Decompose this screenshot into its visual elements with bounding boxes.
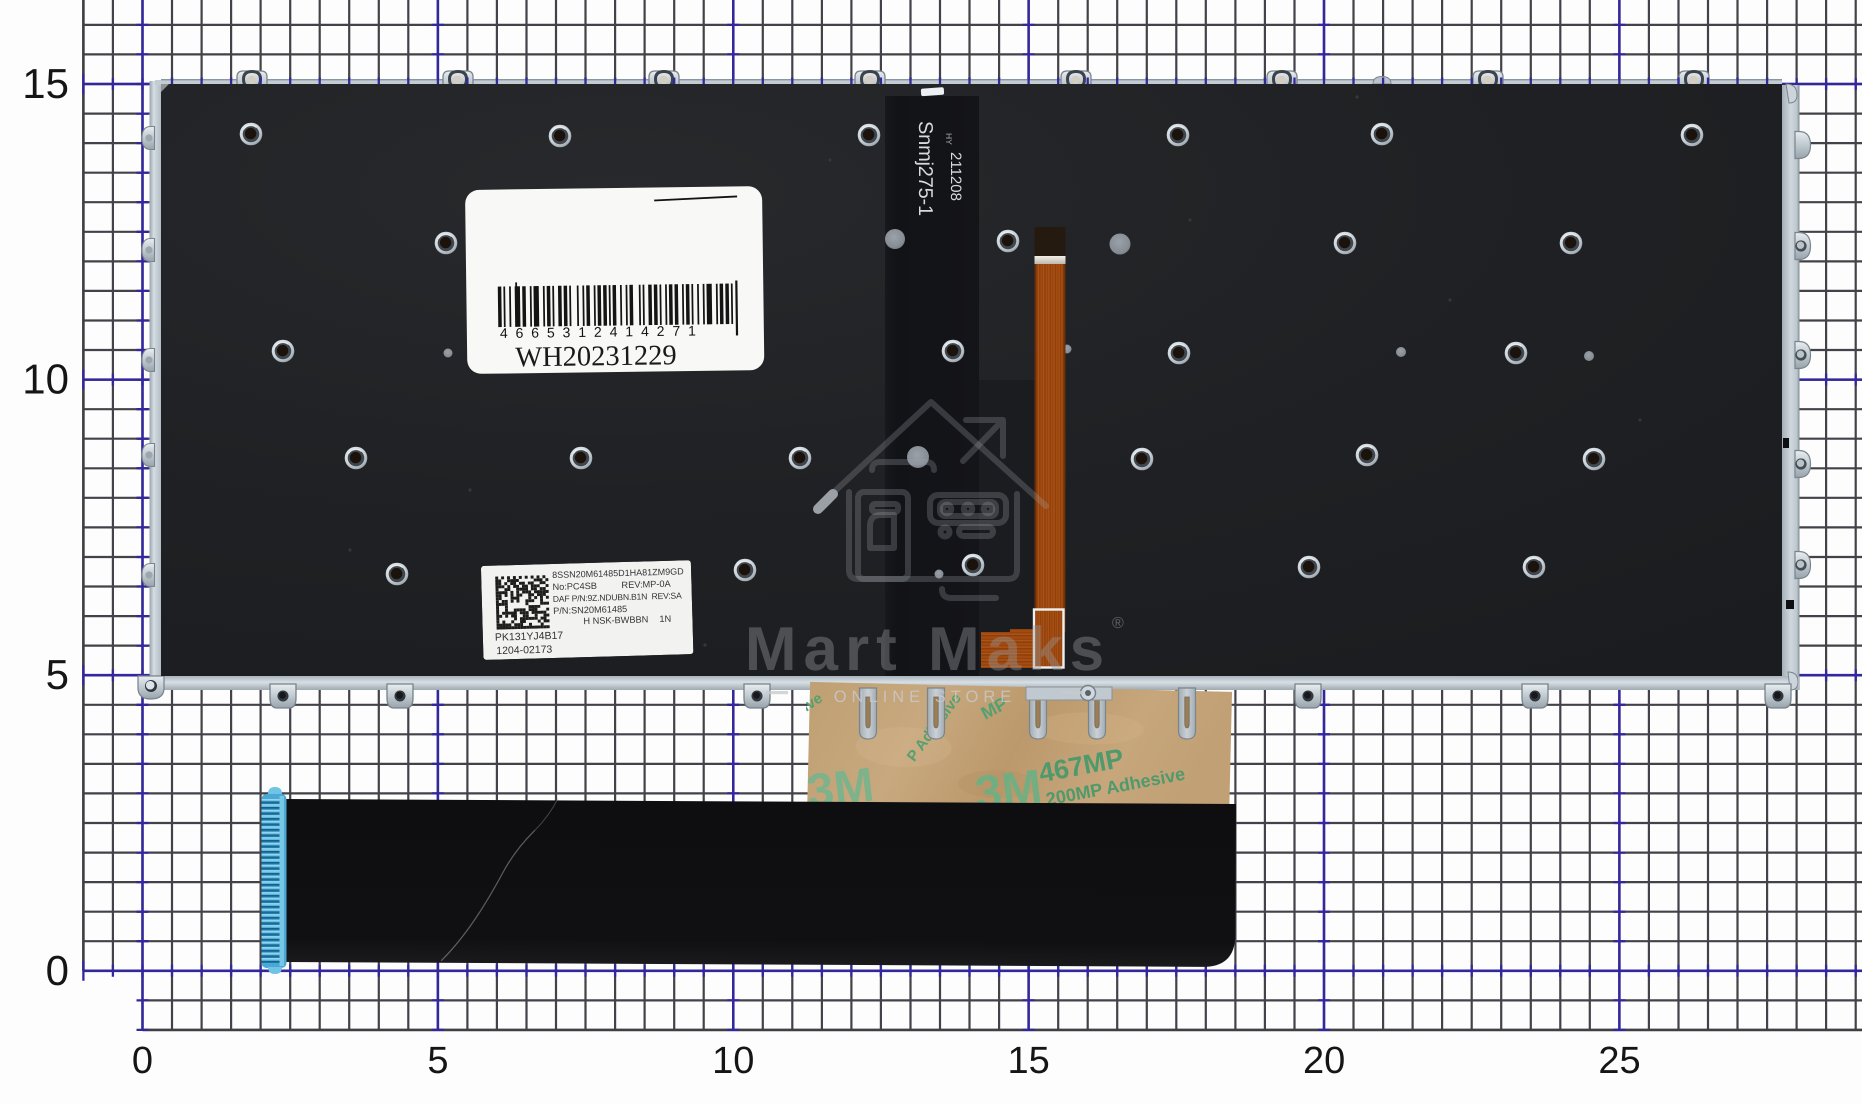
svg-text:10: 10 <box>712 1040 754 1082</box>
svg-text:1N: 1N <box>659 614 671 624</box>
svg-text:P/N:SN20M61485: P/N:SN20M61485 <box>553 604 627 616</box>
svg-text:Mart Maks: Mart Maks <box>745 615 1111 684</box>
svg-text:HY: HY <box>944 133 954 145</box>
svg-text:25: 25 <box>1598 1040 1640 1082</box>
svg-text:PK131YJ4B17: PK131YJ4B17 <box>495 630 564 644</box>
svg-text:5: 5 <box>427 1040 448 1082</box>
svg-text:No:PC4SB: No:PC4SB <box>552 581 597 592</box>
svg-text:0: 0 <box>132 1040 153 1082</box>
svg-text:5: 5 <box>46 651 69 698</box>
svg-text:20: 20 <box>1303 1040 1345 1082</box>
svg-text:10: 10 <box>22 356 69 403</box>
svg-text:REV:MP-0A: REV:MP-0A <box>621 579 671 590</box>
svg-text:211208: 211208 <box>947 152 964 201</box>
svg-text:1204-02173: 1204-02173 <box>496 644 553 658</box>
svg-text:0: 0 <box>46 947 69 994</box>
svg-text:Snmj275-1: Snmj275-1 <box>914 121 936 216</box>
svg-text:ONLINE STORE: ONLINE STORE <box>834 688 1017 706</box>
svg-text:WH20231229: WH20231229 <box>515 340 677 373</box>
svg-text:15: 15 <box>22 60 69 107</box>
svg-text:H NSK-BWBBN: H NSK-BWBBN <box>583 614 648 626</box>
svg-text:15: 15 <box>1008 1040 1050 1082</box>
svg-text:®: ® <box>1112 615 1124 632</box>
svg-text:4665312414271: 4665312414271 <box>500 322 704 341</box>
